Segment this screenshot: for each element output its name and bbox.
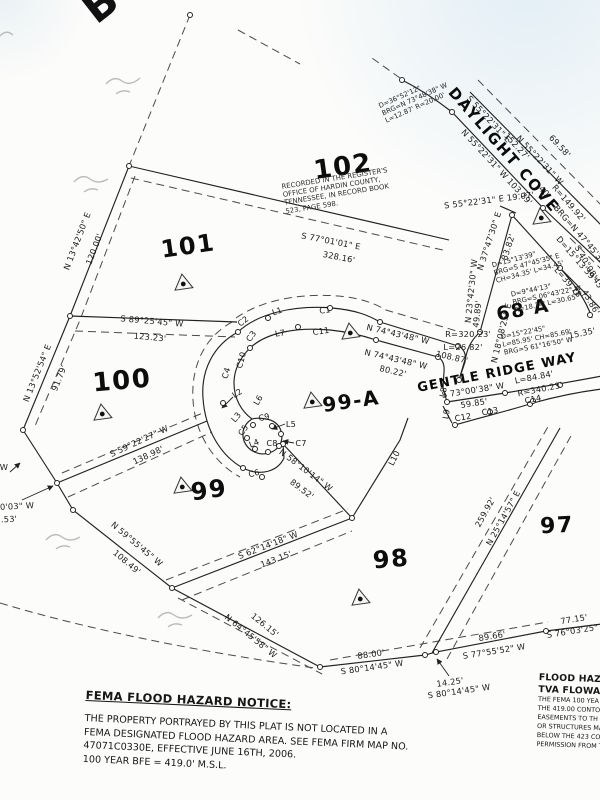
vertex-point — [221, 401, 226, 406]
vertex-point — [55, 481, 60, 486]
plat-map-page: 1021011009999-A989768 A N 13°42'50" E120… — [0, 0, 600, 800]
curve-table-tag: C1 — [319, 304, 332, 315]
vertex-point — [510, 213, 515, 218]
vertex-point — [266, 316, 271, 321]
vertex-point — [71, 508, 76, 513]
vertex-point — [68, 314, 73, 319]
lot-number-label: 99 — [189, 474, 229, 507]
benchmark-triangle-icon — [173, 273, 193, 290]
vertex-point — [188, 13, 193, 18]
bearing-distance-label: L=26.82' — [443, 342, 482, 352]
curve-table-tag: L5 — [286, 419, 296, 429]
vertex-point — [236, 330, 241, 335]
curve-table-tag: L7 — [274, 327, 285, 338]
lot-number-label: 98 — [372, 543, 411, 574]
curve-table-tag: L9 — [440, 408, 452, 420]
pencil-squiggles — [0, 32, 192, 627]
vertex-point — [400, 78, 405, 83]
vertex-point — [423, 653, 428, 658]
bearing-distance-label: W — [0, 462, 8, 472]
vertex-point — [296, 325, 301, 330]
vertex-point — [445, 400, 450, 405]
vertex-point — [127, 164, 132, 169]
vertex-point — [434, 650, 439, 655]
vertex-point — [266, 450, 271, 455]
curve-table-tag: C7 — [295, 438, 306, 448]
vertex-point — [251, 423, 256, 428]
lot-number-label: 100 — [91, 363, 152, 398]
vertex-point — [279, 432, 284, 437]
bearing-distance-label: .53' — [1, 514, 18, 525]
curve-table-tag: C8 — [266, 438, 277, 448]
vertex-point — [450, 110, 455, 115]
vertex-point — [270, 424, 275, 429]
benchmark-triangle-icon — [92, 403, 112, 420]
vertex-point — [21, 428, 26, 433]
benchmark-triangle-icon — [302, 391, 322, 408]
fema-flood-hazard-notice: FEMA FLOOD HAZARD NOTICE: THE PROPERTY P… — [82, 688, 430, 782]
benchmark-triangle-icon — [340, 322, 360, 339]
lot-number-label: 97 — [540, 513, 575, 540]
vertex-point — [318, 665, 323, 670]
leader-arrows — [10, 397, 449, 676]
vertex-point — [350, 516, 355, 521]
bearing-distance-label: 0'03" W — [0, 500, 34, 512]
flood-hazard-note-partial: FLOOD HAZA TVA FLOWAG THE FEMA 100 YEA T… — [536, 672, 600, 753]
vertex-point — [241, 466, 246, 471]
vertex-point — [248, 346, 253, 351]
bearing-distance-label: R=320.23' — [445, 329, 491, 339]
benchmark-triangle-icon — [350, 588, 370, 605]
plat-geometry — [0, 0, 600, 800]
vertex-point — [503, 391, 508, 396]
vertex-point — [170, 586, 175, 591]
vertex-point — [374, 338, 379, 343]
